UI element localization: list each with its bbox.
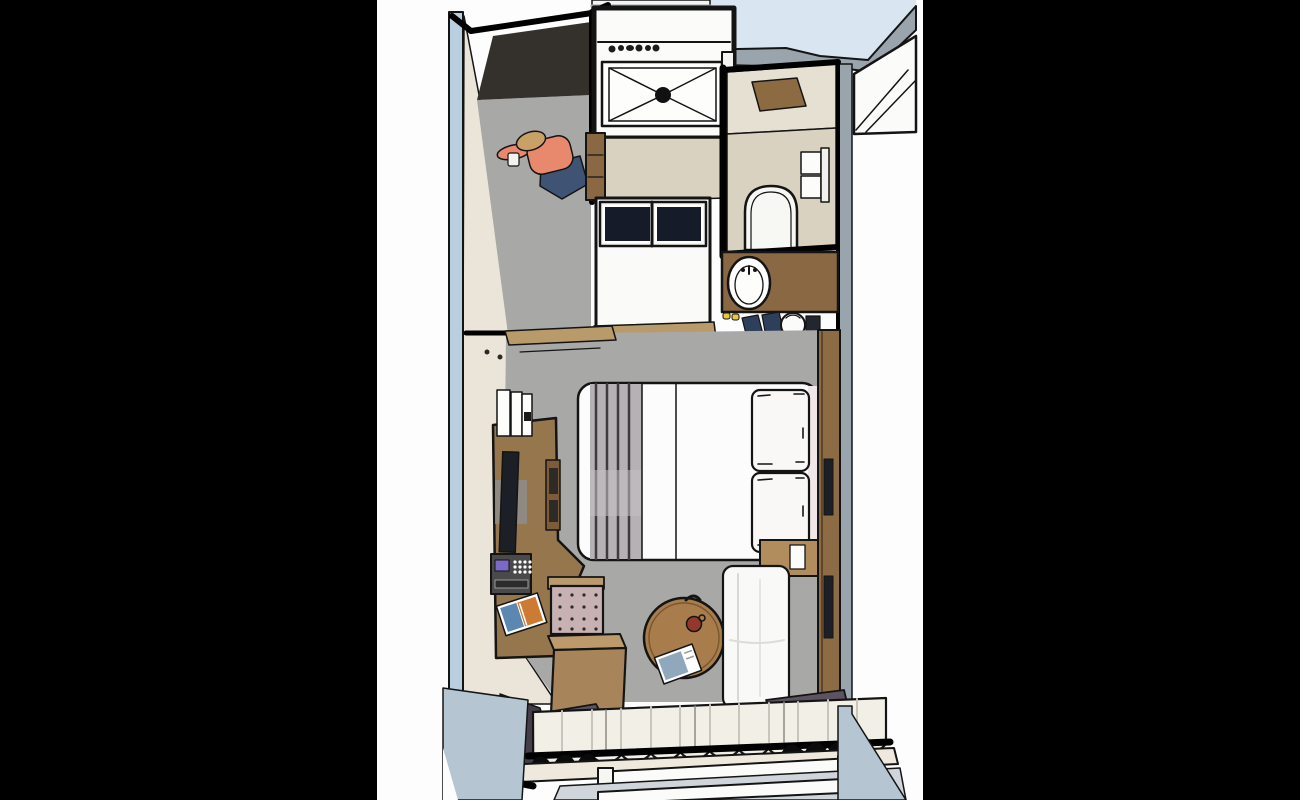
balcony-floor-left [443,688,528,800]
toilet [745,186,797,250]
screenshot-stage [0,0,1300,800]
safe-slot [495,580,528,588]
toilet-mat [752,78,806,111]
shower-room [594,8,734,138]
pillow-top [752,390,809,471]
tp-holder-bottom [801,176,821,198]
left-wall-blue-top [449,12,463,702]
cube-front [551,648,626,714]
wall-hook-2 [498,355,503,360]
tp-holder-top [801,152,821,174]
wall-tv-upper [824,459,833,515]
wall-hook-1 [485,350,490,355]
glass-pane-right [656,206,702,242]
person-cup [508,153,519,166]
cube-table [548,634,626,714]
tp-holder-side [821,148,829,202]
vanity-tap-right [753,268,757,272]
desk-tv [499,452,518,552]
shower-drain [655,87,671,103]
nightstand-phone [790,545,805,569]
toilet-room [723,62,838,256]
safe [491,554,532,594]
luggage-unit [594,198,716,342]
bath-floor [594,138,730,202]
rack-slot-1 [549,468,558,494]
bed [578,383,818,560]
vanity-tap-left [741,268,745,272]
ottoman [548,577,604,634]
book-label [524,412,531,421]
glass-pane-left [604,206,651,242]
floor-plan-svg [0,0,1300,800]
armchair [723,566,789,708]
bath-cabinet [586,133,605,200]
safe-screen [495,560,509,571]
ottoman-cushion [551,586,603,634]
armchair-body [723,566,789,708]
bed-runner-check [590,470,642,516]
rack-slot-2 [549,500,558,522]
wall-tv-lower [824,576,833,638]
bath-corridor [586,133,730,202]
letterbox-left [0,0,377,800]
letterbox-right [923,0,1300,800]
